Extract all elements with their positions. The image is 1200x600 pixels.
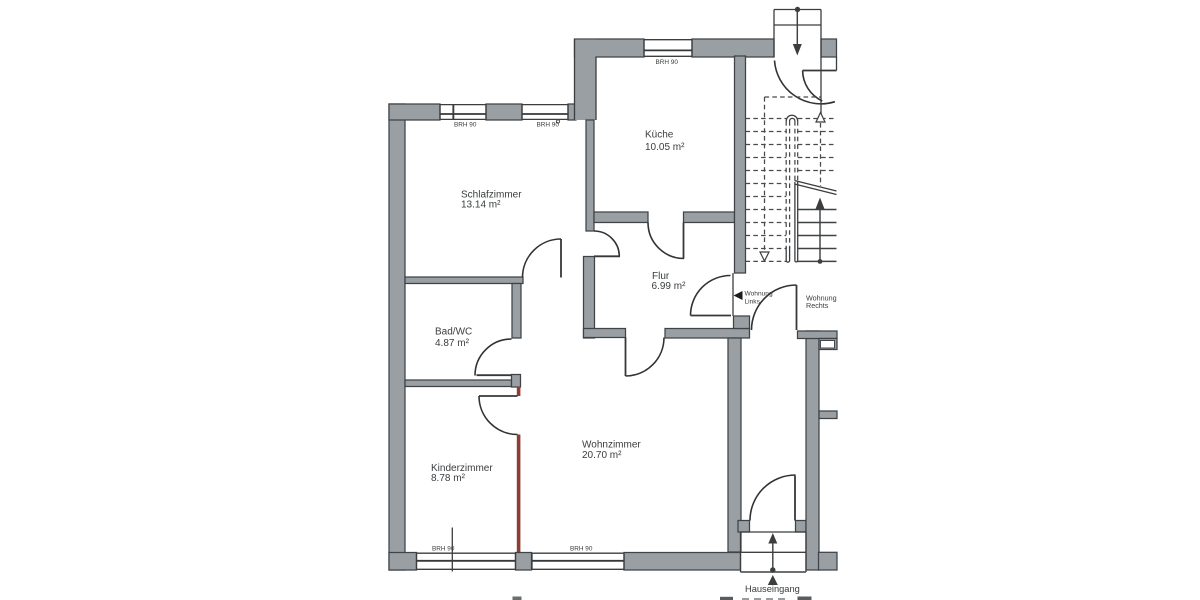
svg-text:Wohnzimmer: Wohnzimmer: [582, 440, 641, 451]
svg-text:4.87 m²: 4.87 m²: [435, 338, 470, 349]
svg-text:BRH 90: BRH 90: [537, 121, 560, 128]
svg-text:10.05 m²: 10.05 m²: [645, 142, 685, 153]
svg-text:BRH 90: BRH 90: [656, 59, 679, 66]
svg-text:Links: Links: [745, 299, 761, 306]
svg-text:20.70 m²: 20.70 m²: [582, 450, 622, 461]
svg-text:8.78 m²: 8.78 m²: [431, 473, 466, 484]
svg-text:BRH 90: BRH 90: [432, 546, 455, 553]
svg-text:Rechts: Rechts: [806, 301, 829, 310]
svg-text:BRH 90: BRH 90: [570, 546, 593, 553]
svg-text:6.99 m²: 6.99 m²: [652, 281, 687, 292]
svg-text:Hauseingang: Hauseingang: [745, 584, 800, 594]
svg-text:Bad/WC: Bad/WC: [435, 327, 472, 338]
svg-text:Küche: Küche: [645, 130, 674, 141]
svg-text:13.14 m²: 13.14 m²: [461, 200, 501, 211]
svg-text:BRH 90: BRH 90: [454, 121, 477, 128]
